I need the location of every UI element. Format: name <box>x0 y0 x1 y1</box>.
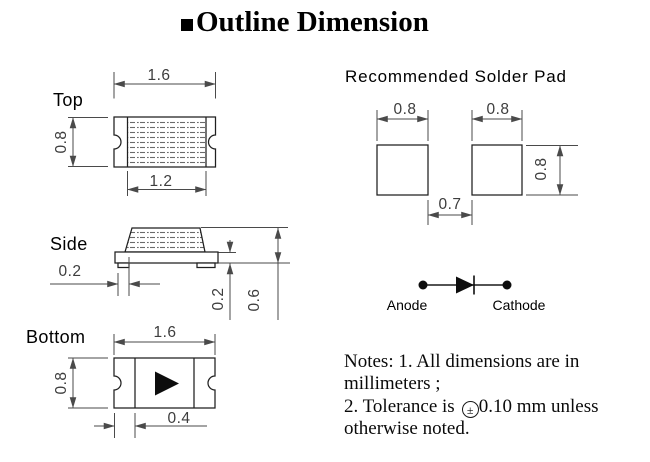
notes-block: Notes: 1. All dimensions are in millimet… <box>344 351 644 440</box>
tolerance-symbol: ± <box>462 401 479 418</box>
side-view-right-foot <box>197 263 215 268</box>
top-height-dimension <box>68 118 108 167</box>
right-pad-width-dim-label: 0.8 <box>486 101 509 119</box>
side-view-base <box>115 252 218 263</box>
top-inner-width-dim-label: 1.2 <box>149 173 172 191</box>
left-pad <box>377 145 428 195</box>
side-view-label: Side <box>50 234 88 255</box>
page-title-text: Outline Dimension <box>196 6 429 38</box>
top-width-dim-label: 1.6 <box>147 67 170 85</box>
side-total-height-dim-label: 0.6 <box>246 288 264 311</box>
notes-line-4: otherwise noted. <box>344 418 644 440</box>
side-view-lens <box>125 228 205 252</box>
side-view-left-foot <box>118 263 129 268</box>
cathode-terminal-dot <box>503 281 512 290</box>
bullet-square-icon <box>181 19 193 31</box>
page-title: Outline Dimension <box>181 6 429 39</box>
pad-gap-dim-label: 0.7 <box>438 196 461 214</box>
bottom-view-drawing <box>68 334 215 438</box>
bottom-electrode-dim-label: 0.4 <box>167 410 190 428</box>
anode-label: Anode <box>387 297 427 313</box>
notes-line-3: 2. Tolerance is±0.10 mm unless <box>344 396 644 419</box>
notes-line-3-suffix: 0.10 mm unless <box>479 396 599 417</box>
diode-triangle <box>456 277 474 294</box>
datasheet-page: Outline Dimension Top Side Bottom Recomm… <box>0 0 650 462</box>
top-height-dim-label: 0.8 <box>53 130 71 153</box>
notes-line-2: millimeters ; <box>344 373 644 395</box>
top-view-label: Top <box>53 90 83 111</box>
anode-terminal-dot <box>419 281 428 290</box>
side-base-thickness-dim-label: 0.2 <box>210 287 228 310</box>
bottom-height-dim-label: 0.8 <box>53 371 71 394</box>
top-view-hatch <box>129 120 206 164</box>
diode-symbol <box>419 276 512 295</box>
bottom-height-dimension <box>68 358 108 408</box>
top-view-drawing <box>68 72 216 196</box>
left-pad-width-dim-label: 0.8 <box>393 101 416 119</box>
bottom-width-dim-label: 1.6 <box>153 324 176 342</box>
pad-height-dim-label: 0.8 <box>533 157 551 180</box>
bottom-view-label: Bottom <box>26 327 85 348</box>
cathode-label: Cathode <box>493 297 546 313</box>
solder-pad-title: Recommended Solder Pad <box>345 67 567 87</box>
side-terminal-dim-label: 0.2 <box>58 263 81 281</box>
right-pad <box>472 145 522 195</box>
notes-line-1: Notes: 1. All dimensions are in <box>344 351 644 373</box>
notes-line-3-prefix: 2. Tolerance is <box>344 396 455 417</box>
